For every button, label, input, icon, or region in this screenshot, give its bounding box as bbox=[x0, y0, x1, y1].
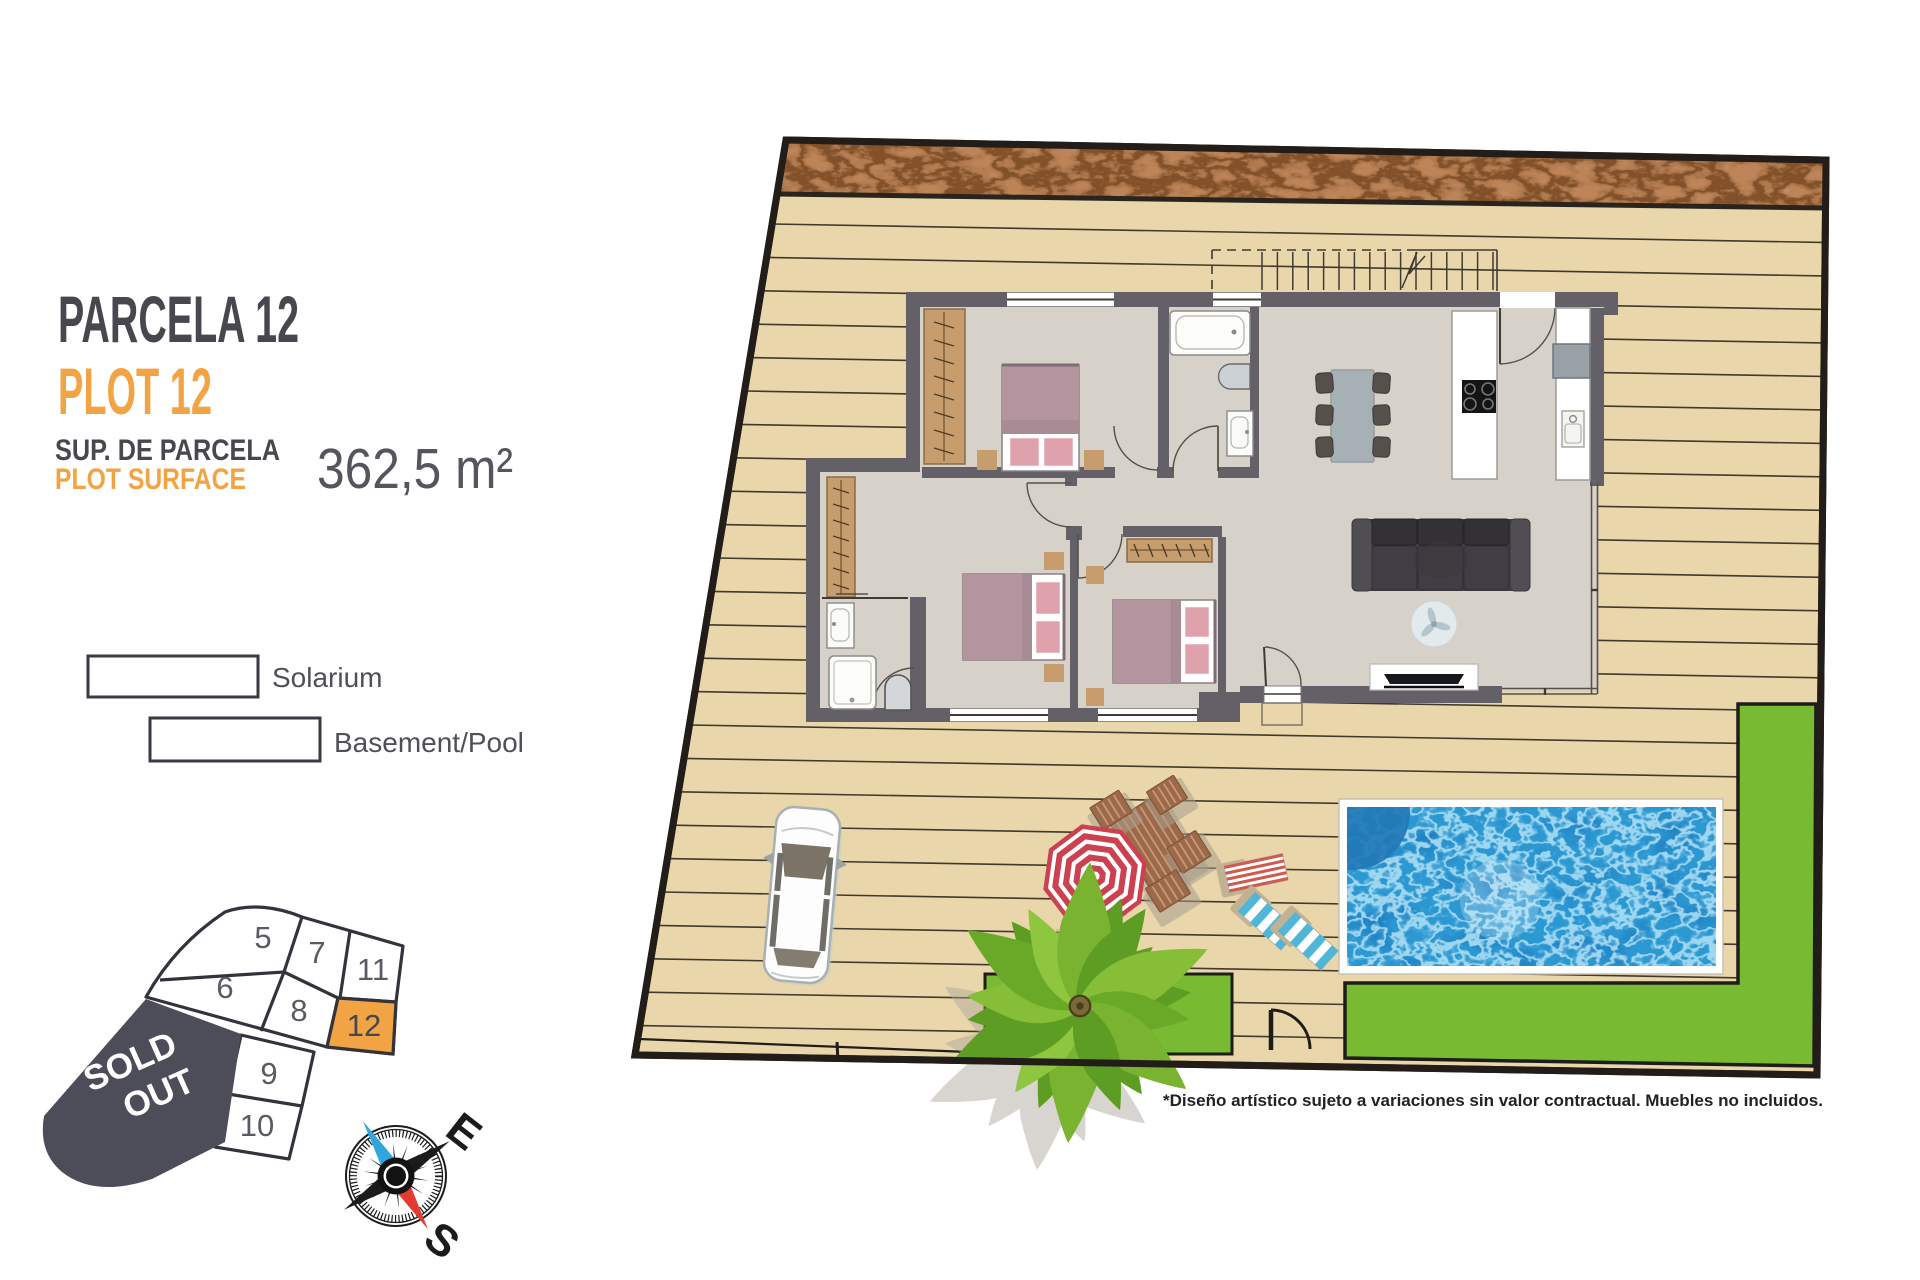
svg-text:PARCELA 12: PARCELA 12 bbox=[58, 282, 299, 356]
svg-text:9: 9 bbox=[260, 1056, 277, 1091]
svg-text:Solarium: Solarium bbox=[272, 662, 382, 693]
svg-text:12: 12 bbox=[347, 1008, 381, 1043]
svg-text:362,5 m²: 362,5 m² bbox=[317, 437, 513, 501]
svg-text:5: 5 bbox=[254, 920, 271, 955]
svg-text:6: 6 bbox=[216, 970, 233, 1005]
svg-text:PLOT SURFACE: PLOT SURFACE bbox=[55, 463, 246, 496]
svg-text:*Diseño artístico sujeto a var: *Diseño artístico sujeto a variaciones s… bbox=[1163, 1091, 1823, 1110]
svg-text:10: 10 bbox=[240, 1108, 274, 1143]
svg-text:Basement/Pool: Basement/Pool bbox=[334, 727, 524, 758]
svg-text:11: 11 bbox=[357, 952, 389, 987]
svg-text:7: 7 bbox=[308, 935, 325, 970]
svg-text:PLOT 12: PLOT 12 bbox=[58, 354, 212, 428]
svg-text:8: 8 bbox=[290, 993, 307, 1028]
